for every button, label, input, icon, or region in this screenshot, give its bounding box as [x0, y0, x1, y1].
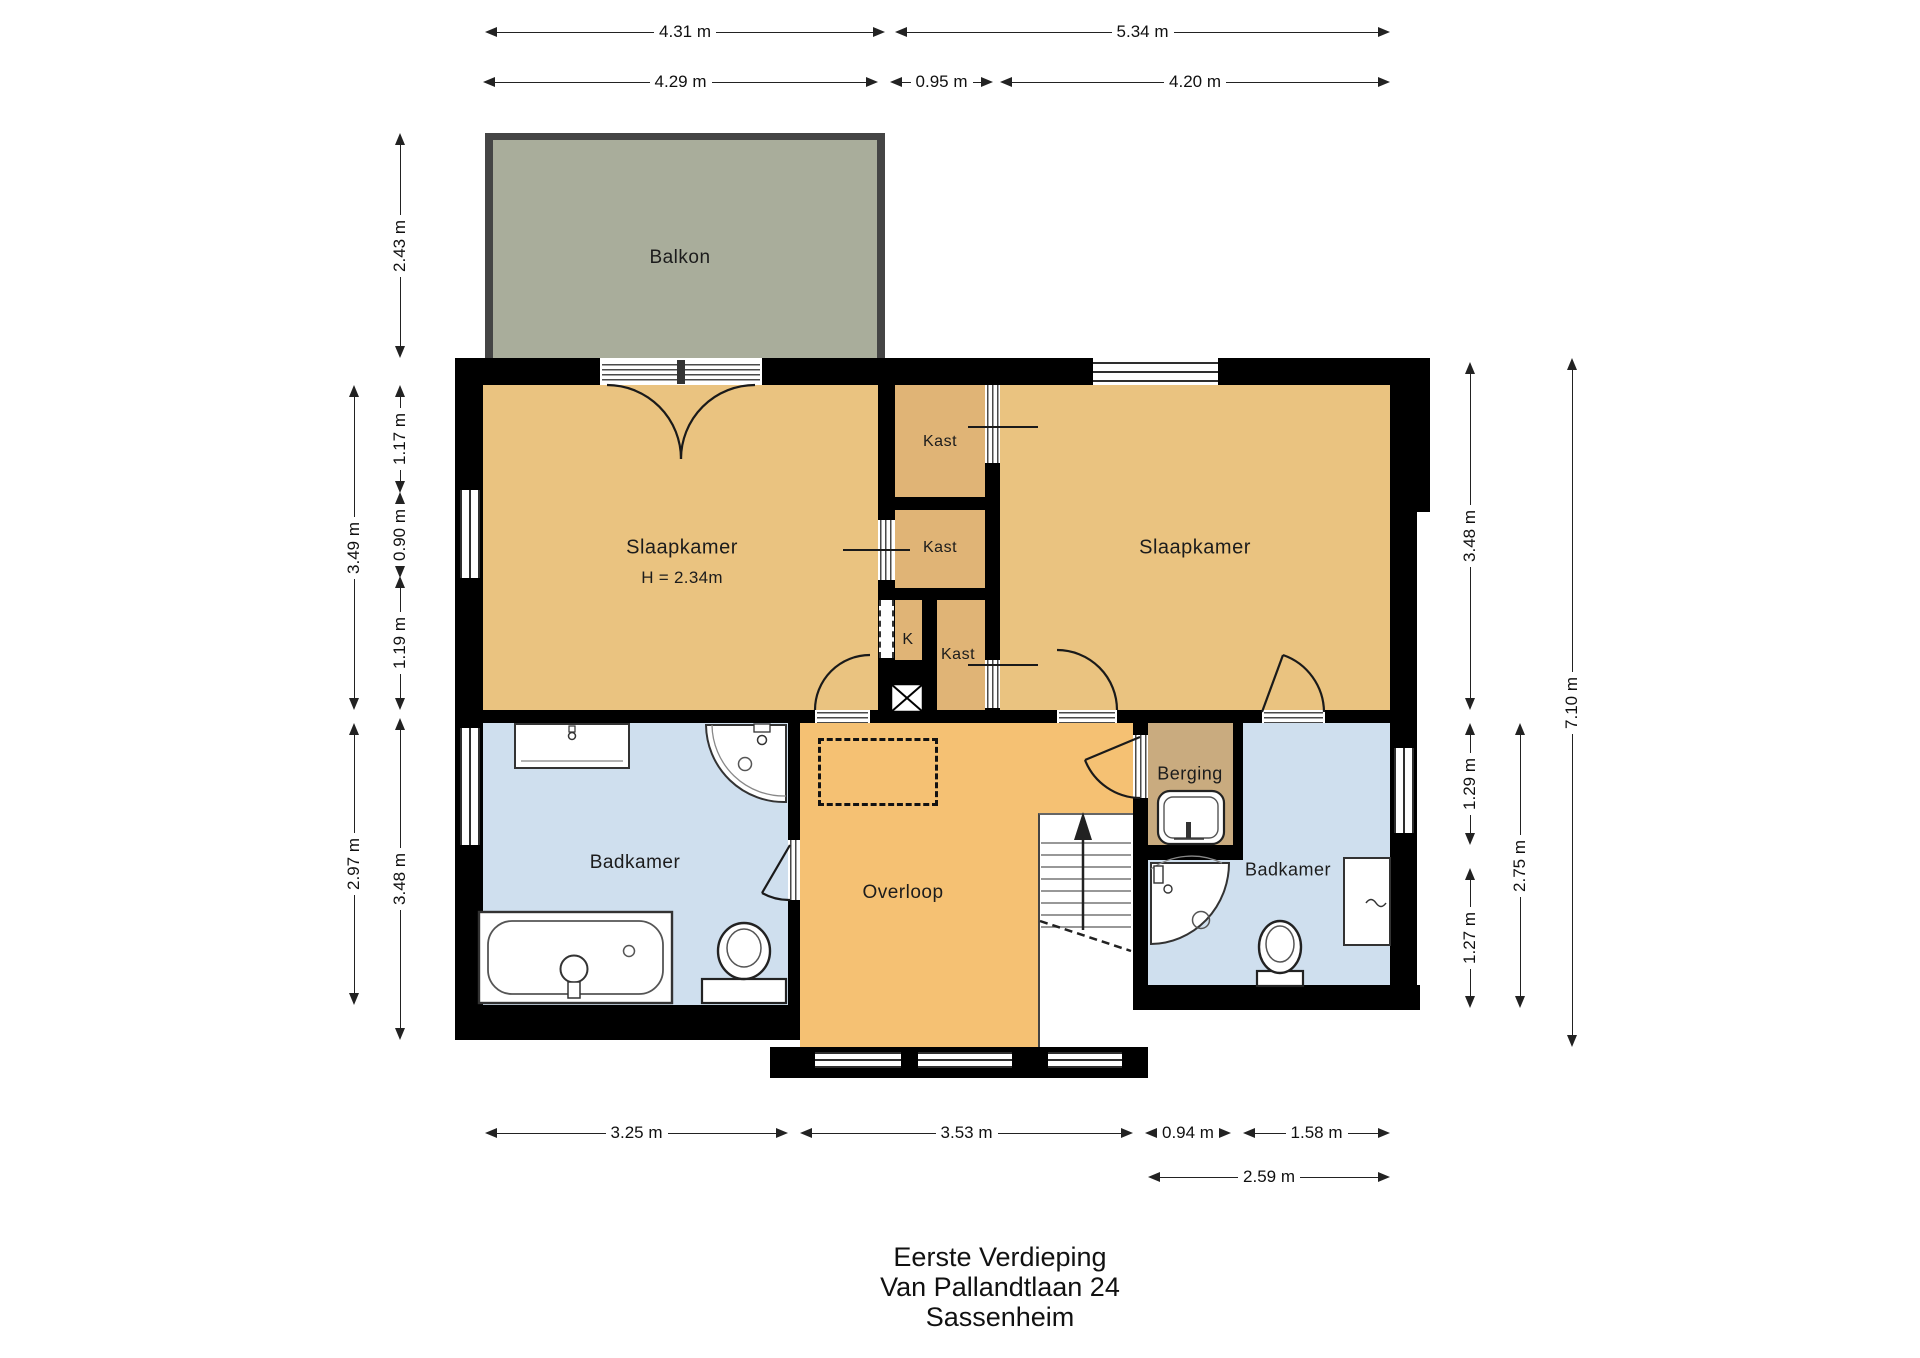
label-overloop: Overloop — [862, 882, 943, 904]
label-height-note: H = 2.34m — [641, 568, 723, 588]
wall-berging-bottom — [1133, 845, 1243, 860]
door-bathleft — [788, 840, 800, 900]
title-line-address: Van Pallandtlaan 24 — [700, 1272, 1300, 1302]
wall-kast-right-1 — [985, 463, 1000, 660]
door-kast-top — [985, 385, 1000, 463]
plan-title: Eerste Verdieping Van Pallandtlaan 24 Sa… — [700, 1242, 1300, 1332]
window-bottom-2 — [918, 1052, 1012, 1068]
wall-right-mid — [1390, 512, 1417, 723]
dim-top2-429: 4.29 m — [483, 75, 878, 89]
wall-bottom-left — [455, 1005, 800, 1040]
wall-bedrooms-bottom-1 — [483, 710, 815, 723]
window-bottom-3 — [1048, 1052, 1122, 1068]
dim-right-275: 2.75 m — [1513, 723, 1527, 1008]
dim-bottom-325: 3.25 m — [485, 1126, 788, 1140]
dim-top-431: 4.31 m — [485, 25, 885, 39]
dim-right-348: 3.48 m — [1463, 362, 1477, 710]
title-line-floor: Eerste Verdieping — [700, 1242, 1300, 1272]
door-bedright-bath — [1262, 710, 1325, 723]
door-bedleft-overloop — [815, 710, 870, 723]
label-badkamer-left: Badkamer — [590, 852, 681, 874]
label-k-shaft: K — [902, 631, 913, 649]
wall-top-left — [455, 358, 600, 385]
dim-bottom-259: 2.59 m — [1148, 1170, 1390, 1184]
dim-left-119: 1.19 m — [393, 576, 407, 710]
wall-bottom-right — [1133, 985, 1420, 1010]
dim-top2-420: 4.20 m — [1000, 75, 1390, 89]
label-badkamer-right: Badkamer — [1245, 860, 1331, 881]
window-bottom-1 — [815, 1052, 901, 1068]
k-duct-strip — [879, 600, 894, 658]
wall-bedrooms-bottom-3 — [1117, 710, 1262, 723]
window-left-upper — [460, 490, 480, 578]
wall-top-mid — [762, 358, 1093, 385]
title-line-city: Sassenheim — [700, 1302, 1300, 1332]
dim-bottom-353: 3.53 m — [800, 1126, 1133, 1140]
dim-left-348: 3.48 m — [393, 718, 407, 1040]
wall-bedrooms-bottom-4 — [1325, 710, 1390, 723]
label-berging: Berging — [1157, 764, 1223, 785]
label-slaapkamer-right: Slaapkamer — [1139, 537, 1251, 560]
dim-left-297: 2.97 m — [347, 723, 361, 1005]
window-bedroom-right-top — [1093, 362, 1218, 382]
dim-top2-095: 0.95 m — [890, 75, 993, 89]
dim-right-710: 7.10 m — [1565, 358, 1579, 1047]
wall-right-upper — [1390, 358, 1430, 512]
door-bedright-stairs — [1057, 710, 1117, 723]
wall-bathleft-right-1 — [788, 723, 800, 840]
wall-overloop-right-1 — [1133, 723, 1148, 735]
label-kast-top: Kast — [923, 433, 957, 451]
wall-bathleft-right-2 — [788, 900, 800, 1005]
wall-kast-right-2 — [985, 708, 1000, 723]
label-slaapkamer-left: Slaapkamer — [626, 537, 738, 560]
dim-right-129: 1.29 m — [1463, 723, 1477, 845]
wall-kast-divider-1 — [878, 497, 1000, 510]
dim-bottom-158: 1.58 m — [1243, 1126, 1390, 1140]
wall-berging-right — [1233, 723, 1243, 845]
wall-k-kast-vertical — [922, 600, 937, 710]
wall-bedrooms-bottom-2 — [870, 710, 1057, 723]
dim-right-127: 1.27 m — [1463, 868, 1477, 1008]
dim-bottom-094: 0.94 m — [1145, 1126, 1230, 1140]
dim-left-349: 3.49 m — [347, 385, 361, 710]
window-left-lower — [460, 728, 480, 845]
label-kast-middle: Kast — [923, 539, 957, 557]
dim-left-090: 0.90 m — [393, 493, 407, 576]
overloop-dashed-opening — [818, 738, 938, 806]
wall-under-k — [895, 660, 922, 710]
window-right-bathroom — [1394, 748, 1414, 833]
door-balcony-centerpost — [677, 360, 685, 384]
room-balkon — [485, 133, 885, 358]
door-kast-middle — [878, 520, 895, 580]
label-kast-bottom: Kast — [941, 646, 975, 664]
room-k-shaft — [895, 600, 922, 660]
dim-left-117: 1.17 m — [393, 385, 407, 493]
door-overloop-berging — [1133, 735, 1148, 798]
label-balkon: Balkon — [649, 247, 710, 269]
dim-left-243: 2.43 m — [393, 133, 407, 358]
wall-overloop-right-2 — [1133, 798, 1148, 1010]
wall-left — [455, 385, 483, 1040]
floorplan-canvas: Balkon Slaapkamer H = 2.34m Slaapkamer K… — [0, 0, 1920, 1358]
wall-kast-divider-2 — [878, 588, 1000, 600]
door-kast-bottom — [985, 660, 1000, 708]
staircase — [1038, 813, 1133, 1047]
dim-top-534: 5.34 m — [895, 25, 1390, 39]
